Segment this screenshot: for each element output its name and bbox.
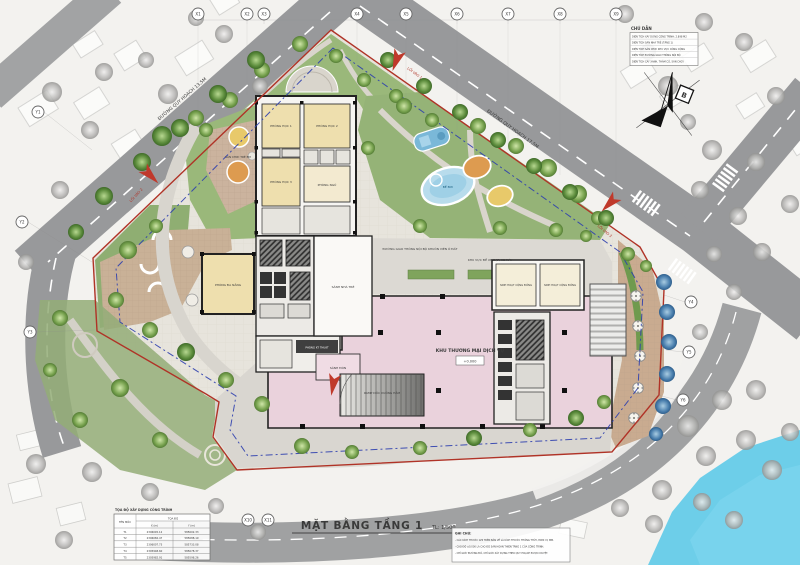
grid-bubble: X8 <box>554 8 566 20</box>
stair-core <box>290 272 310 300</box>
label-bedroom: PHÒNG NGỦ <box>318 182 337 187</box>
svg-text:585598.26: 585598.26 <box>184 555 198 559</box>
svg-text:585678.37: 585678.37 <box>184 549 198 553</box>
grid-bubble: X3 <box>258 8 270 20</box>
svg-text:X4: X4 <box>354 12 360 17</box>
svg-text:585733.08: 585733.08 <box>184 543 198 547</box>
grid-bubble: X10 <box>242 514 254 526</box>
svg-text:X11: X11 <box>264 518 272 523</box>
label-nursery-lobby: SẢNH NHÀ TRẺ <box>332 284 355 289</box>
grid-bubble: X7 <box>502 8 514 20</box>
label-commercial: KHU THƯƠNG MẠI DỊCH VỤ <box>436 348 505 354</box>
legend-item: DIỆN TÍCH XÂY DỰNG CÔNG TRÌNH: 2.898 M2 <box>632 36 687 39</box>
basement-ramp <box>340 374 424 416</box>
label-level: +0.000 <box>464 360 477 364</box>
svg-text:2306045.12: 2306045.12 <box>147 530 163 534</box>
label-reception: SẢNH ĐÓN <box>330 365 346 370</box>
label-classroom-1: PHÒNG HỌC 1 <box>270 123 292 128</box>
label-ramp: RAMP DỐC XUỐNG HẦM <box>364 390 401 395</box>
svg-text:X2: X2 <box>244 12 250 17</box>
play-circle-orange <box>227 161 249 183</box>
svg-text:Y3: Y3 <box>27 330 33 335</box>
svg-text:T2: T2 <box>123 536 127 540</box>
coordinate-table: TỌA ĐỘ XÂY DỰNG CÔNG TRÌNH TÊN MỐC TỌA Đ… <box>114 507 210 560</box>
svg-text:Y4: Y4 <box>688 300 694 305</box>
grid-bubble: X2 <box>241 8 253 20</box>
note-line: - CÁC KÍCH THƯỚC GHI TRÊN BẢN VẼ LÀ KÍCH… <box>455 539 554 542</box>
notes-title: GHI CHÚ: <box>455 531 471 536</box>
label-entrance-1: LỐI VÀO 1 <box>406 66 423 80</box>
umbrella-table <box>630 290 642 302</box>
grid-bubble: X6 <box>451 8 463 20</box>
legend-item: DIỆN TÍCH ĐƯỜNG GIAO THÔNG NỘI BỘ <box>632 54 681 57</box>
play-circle-yellow <box>229 127 249 147</box>
svg-text:X5: X5 <box>403 12 409 17</box>
label-bike-parking: KHU VỰC ĐỂ XE ĐẠP, XE MÁY <box>468 257 513 262</box>
planter-strip <box>408 270 454 279</box>
legend-item: DIỆN TÍCH CÂY XANH, THẢM CỎ, SÂN CHƠI <box>632 60 684 63</box>
svg-text:T1: T1 <box>123 530 127 534</box>
notes-box: GHI CHÚ: - CÁC KÍCH THƯỚC GHI TRÊN BẢN V… <box>452 528 570 562</box>
label-playground: SÂN CHƠI TRẺ EM <box>225 154 251 159</box>
svg-text:T5: T5 <box>123 555 127 559</box>
svg-text:585688.19: 585688.19 <box>184 536 198 540</box>
svg-text:X9: X9 <box>613 12 619 17</box>
stair-core <box>260 240 282 266</box>
svg-text:2305948.60: 2305948.60 <box>147 549 163 553</box>
svg-text:T4: T4 <box>123 549 127 553</box>
grid-bubble: Y5 <box>683 346 695 358</box>
svg-text:X7: X7 <box>505 12 511 17</box>
legend-item: DIỆN TÍCH SÂN CHƠI KHU VỰC CÔNG CỘNG <box>632 48 685 51</box>
svg-text:2306082.47: 2306082.47 <box>147 536 163 540</box>
svg-text:Y5: Y5 <box>686 350 692 355</box>
umbrella-table <box>628 412 640 424</box>
svg-text:Y2: Y2 <box>19 220 25 225</box>
grid-bubble: X11 <box>262 514 274 526</box>
svg-text:X1: X1 <box>195 12 201 17</box>
stair-core <box>286 240 310 266</box>
canopy-skylight <box>590 284 626 356</box>
grid-bubble: X4 <box>351 8 363 20</box>
col-y: Y (m) <box>188 523 195 527</box>
legend: CHÚ DẪN DIỆN TÍCH XÂY DỰNG CÔNG TRÌNH: 2… <box>630 26 698 66</box>
note-line: - CHỈ GIỚI ĐƯỜNG ĐỎ, CHỈ GIỚI XÂY DỰNG T… <box>455 552 548 555</box>
grid-bubble: X5 <box>400 8 412 20</box>
grid-bubble: Y4 <box>685 296 697 308</box>
stair-core-east <box>516 320 544 360</box>
col-x: X (m) <box>151 523 158 527</box>
grid-bubble: X1 <box>192 8 204 20</box>
svg-text:X6: X6 <box>454 12 460 17</box>
svg-text:X10: X10 <box>244 518 252 523</box>
label-internal-road: ĐƯỜNG GIAO THÔNG NỘI BỘ KHUÔN VIÊN Ô ĐẤT <box>382 246 457 251</box>
label-classroom-3: PHÒNG HỌC 3 <box>270 179 292 184</box>
grid-bubble: Y1 <box>32 106 44 118</box>
legend-item: DIỆN TÍCH SÂN NHÀ TRẺ (TẦNG 1) <box>632 42 673 45</box>
svg-text:X8: X8 <box>557 12 563 17</box>
grid-bubble: Y2 <box>16 216 28 228</box>
sheet-title: MẶT BẰNG TẦNG 1 <box>301 517 423 532</box>
svg-text:Y6: Y6 <box>680 398 686 403</box>
coord-table-title: TỌA ĐỘ XÂY DỰNG CÔNG TRÌNH <box>115 507 173 512</box>
site-plan-sheet: X1 X2 X3 X4 X5 X6 X7 X8 X9 Y1 Y2 Y3 Y4 Y… <box>0 0 800 565</box>
grid-bubble: X9 <box>610 8 622 20</box>
umbrella-table <box>634 350 646 362</box>
plan-canvas: X1 X2 X3 X4 X5 X6 X7 X8 X9 Y1 Y2 Y3 Y4 Y… <box>0 0 800 565</box>
svg-text:585602.33: 585602.33 <box>184 530 198 534</box>
crosswalk-3 <box>668 258 697 284</box>
grid-bubble: Y3 <box>24 326 36 338</box>
svg-text:Y1: Y1 <box>35 110 41 115</box>
umbrella-table <box>632 320 644 332</box>
svg-text:2306007.73: 2306007.73 <box>147 543 163 547</box>
svg-text:T3: T3 <box>123 543 127 547</box>
grid-bubble: Y6 <box>677 394 689 406</box>
label-pool: BỂ BƠI <box>443 184 454 189</box>
label-classroom-2: PHÒNG HỌC 2 <box>316 123 338 128</box>
label-multipurpose: PHÒNG ĐA NĂNG <box>215 282 242 287</box>
note-line: - CAO ĐỘ ±0.000 LÀ CAO ĐỘ SÀN HOÀN THIỆN… <box>455 546 544 549</box>
svg-text:X3: X3 <box>261 12 267 17</box>
svg-text:2305982.91: 2305982.91 <box>147 555 163 559</box>
legend-title: CHÚ DẪN <box>631 26 652 31</box>
